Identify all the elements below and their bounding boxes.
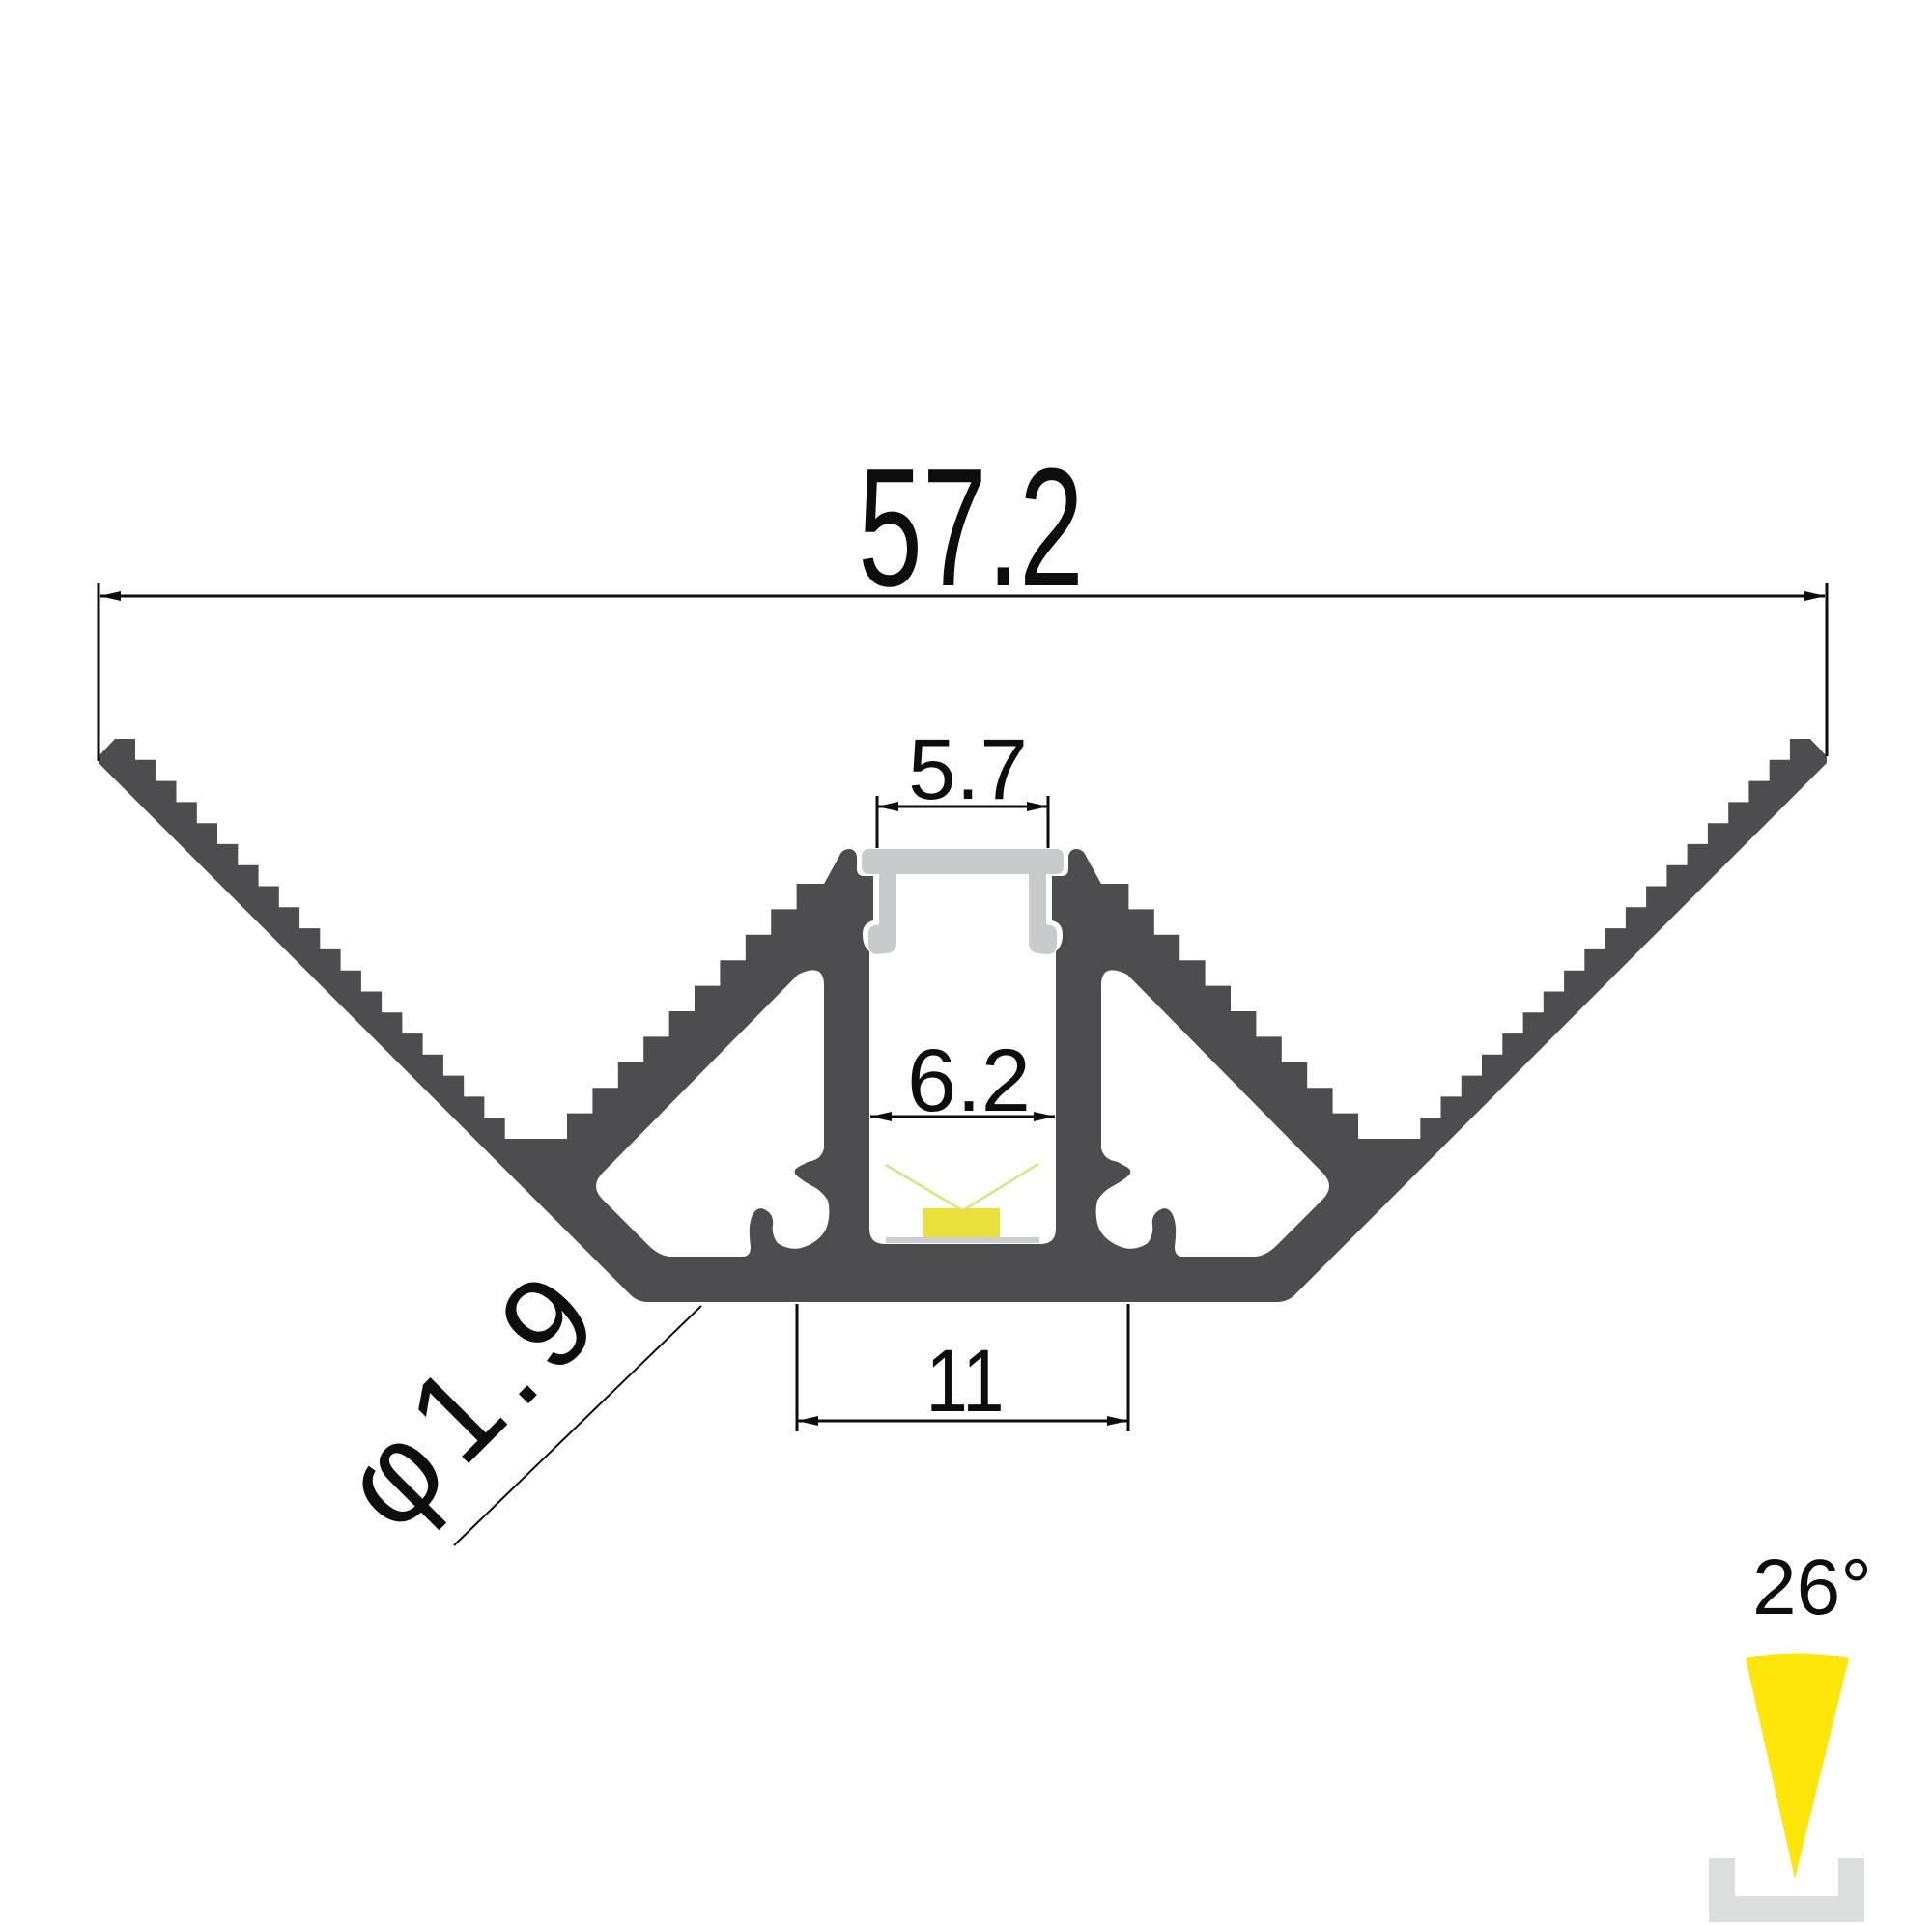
svg-text:11: 11	[925, 1332, 1004, 1430]
svg-text:57.2: 57.2	[858, 434, 1084, 621]
svg-text:6.2: 6.2	[907, 1032, 1031, 1130]
svg-text:5.7: 5.7	[908, 721, 1028, 817]
svg-text:26°: 26°	[1752, 1543, 1872, 1631]
